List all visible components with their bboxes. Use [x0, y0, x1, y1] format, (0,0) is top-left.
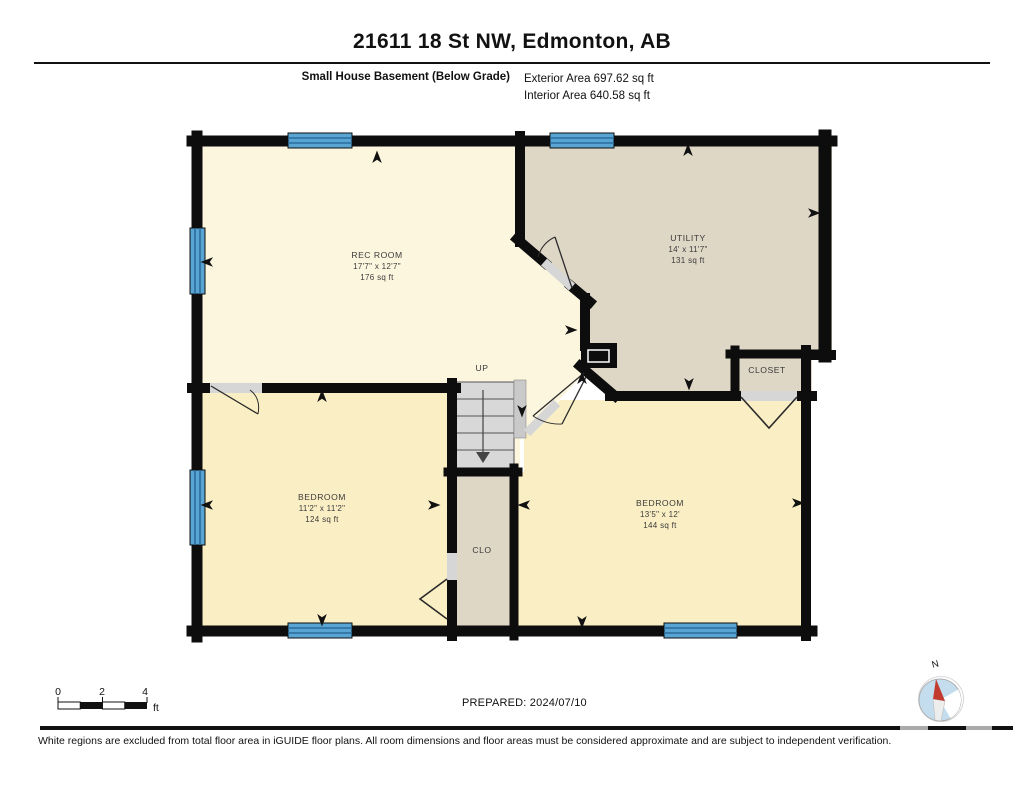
scale-tick-2: 2 — [99, 686, 105, 698]
compass-icon: N — [919, 658, 964, 721]
disclaimer-text: White regions are excluded from total fl… — [38, 735, 1014, 747]
scale-bar: 0 2 4 ft — [55, 686, 159, 714]
floorplan-svg: REC ROOM 17'7" x 12'7" 176 sq ft UTILITY… — [0, 0, 1024, 791]
clo-name: CLO — [472, 545, 491, 555]
compass-north-label: N — [931, 658, 940, 670]
bedroom-right-area: 144 sq ft — [643, 521, 677, 530]
window — [550, 133, 614, 148]
bedroom-left-name: BEDROOM — [298, 492, 346, 502]
footer-divider — [40, 726, 1013, 730]
rec-room-name: REC ROOM — [351, 250, 402, 260]
floorplan-page: 21611 18 St NW, Edmonton, AB Small House… — [0, 0, 1024, 791]
rec-room-dims: 17'7" x 12'7" — [353, 262, 401, 271]
scale-tick-0: 0 — [55, 686, 61, 698]
closet-name: CLOSET — [748, 365, 786, 375]
stairs-up-label: UP — [476, 363, 489, 373]
window — [190, 228, 205, 294]
window — [664, 623, 737, 638]
window — [190, 470, 205, 545]
electrical-panel-icon — [581, 343, 617, 368]
window — [288, 623, 352, 638]
utility-name: UTILITY — [670, 233, 706, 243]
bedroom-left-dims: 11'2" x 11'2" — [299, 504, 346, 513]
scale-tick-4: 4 — [142, 686, 148, 698]
prepared-date: PREPARED: 2024/07/10 — [462, 697, 587, 709]
bedroom-right-name: BEDROOM — [636, 498, 684, 508]
bedroom-left-area: 124 sq ft — [305, 515, 339, 524]
rec-room-area: 176 sq ft — [360, 273, 394, 282]
utility-area: 131 sq ft — [671, 256, 705, 265]
utility-dims: 14' x 11'7" — [668, 245, 707, 254]
window — [288, 133, 352, 148]
bedroom-right-dims: 13'5" x 12' — [640, 510, 680, 519]
scale-unit: ft — [153, 702, 159, 714]
